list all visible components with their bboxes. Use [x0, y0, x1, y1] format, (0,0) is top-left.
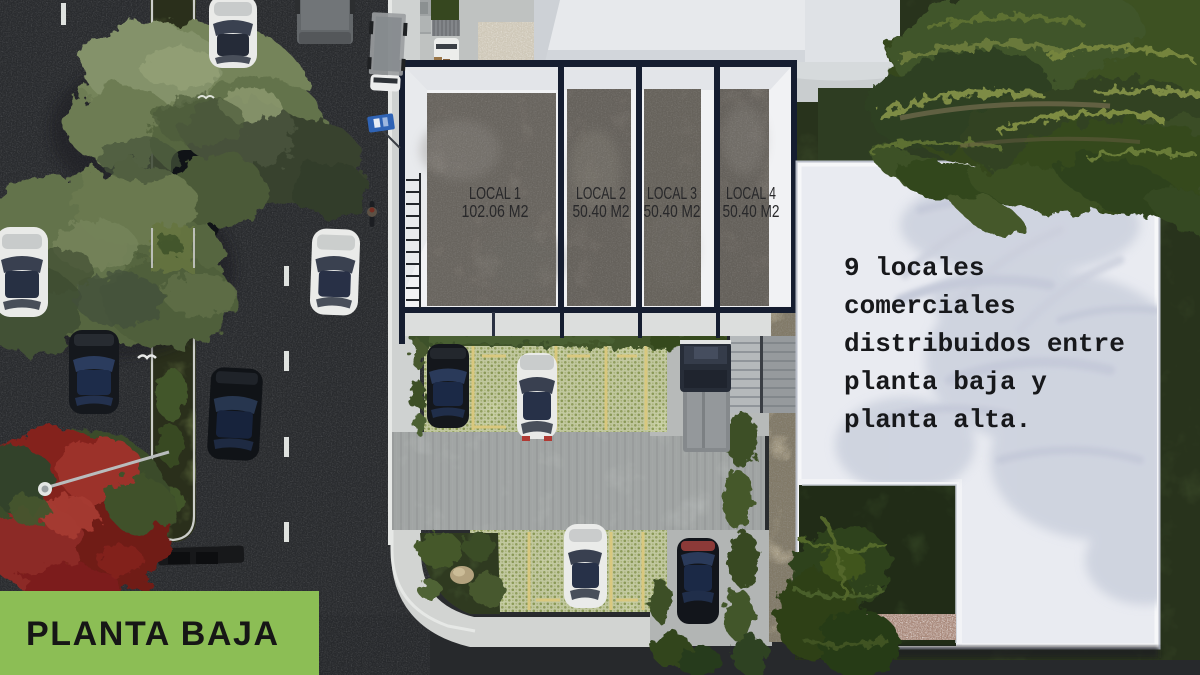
svg-text:PLANTA BAJA: PLANTA BAJA	[26, 615, 280, 653]
svg-text:distribuidos entre: distribuidos entre	[844, 329, 1125, 359]
svg-text:planta alta.: planta alta.	[844, 405, 1031, 435]
svg-text:50.40 M2: 50.40 M2	[723, 201, 780, 221]
svg-text:LOCAL 3: LOCAL 3	[647, 183, 697, 203]
svg-text:LOCAL 4: LOCAL 4	[726, 183, 776, 203]
svg-text:LOCAL 2: LOCAL 2	[576, 183, 626, 203]
svg-text:planta baja y: planta baja y	[844, 367, 1047, 397]
svg-text:LOCAL 1: LOCAL 1	[469, 183, 521, 203]
svg-text:9 locales: 9 locales	[844, 253, 984, 283]
svg-text:50.40 M2: 50.40 M2	[644, 201, 701, 221]
svg-text:comerciales: comerciales	[844, 291, 1016, 321]
svg-text:50.40 M2: 50.40 M2	[573, 201, 630, 221]
svg-text:102.06 M2: 102.06 M2	[462, 201, 529, 221]
